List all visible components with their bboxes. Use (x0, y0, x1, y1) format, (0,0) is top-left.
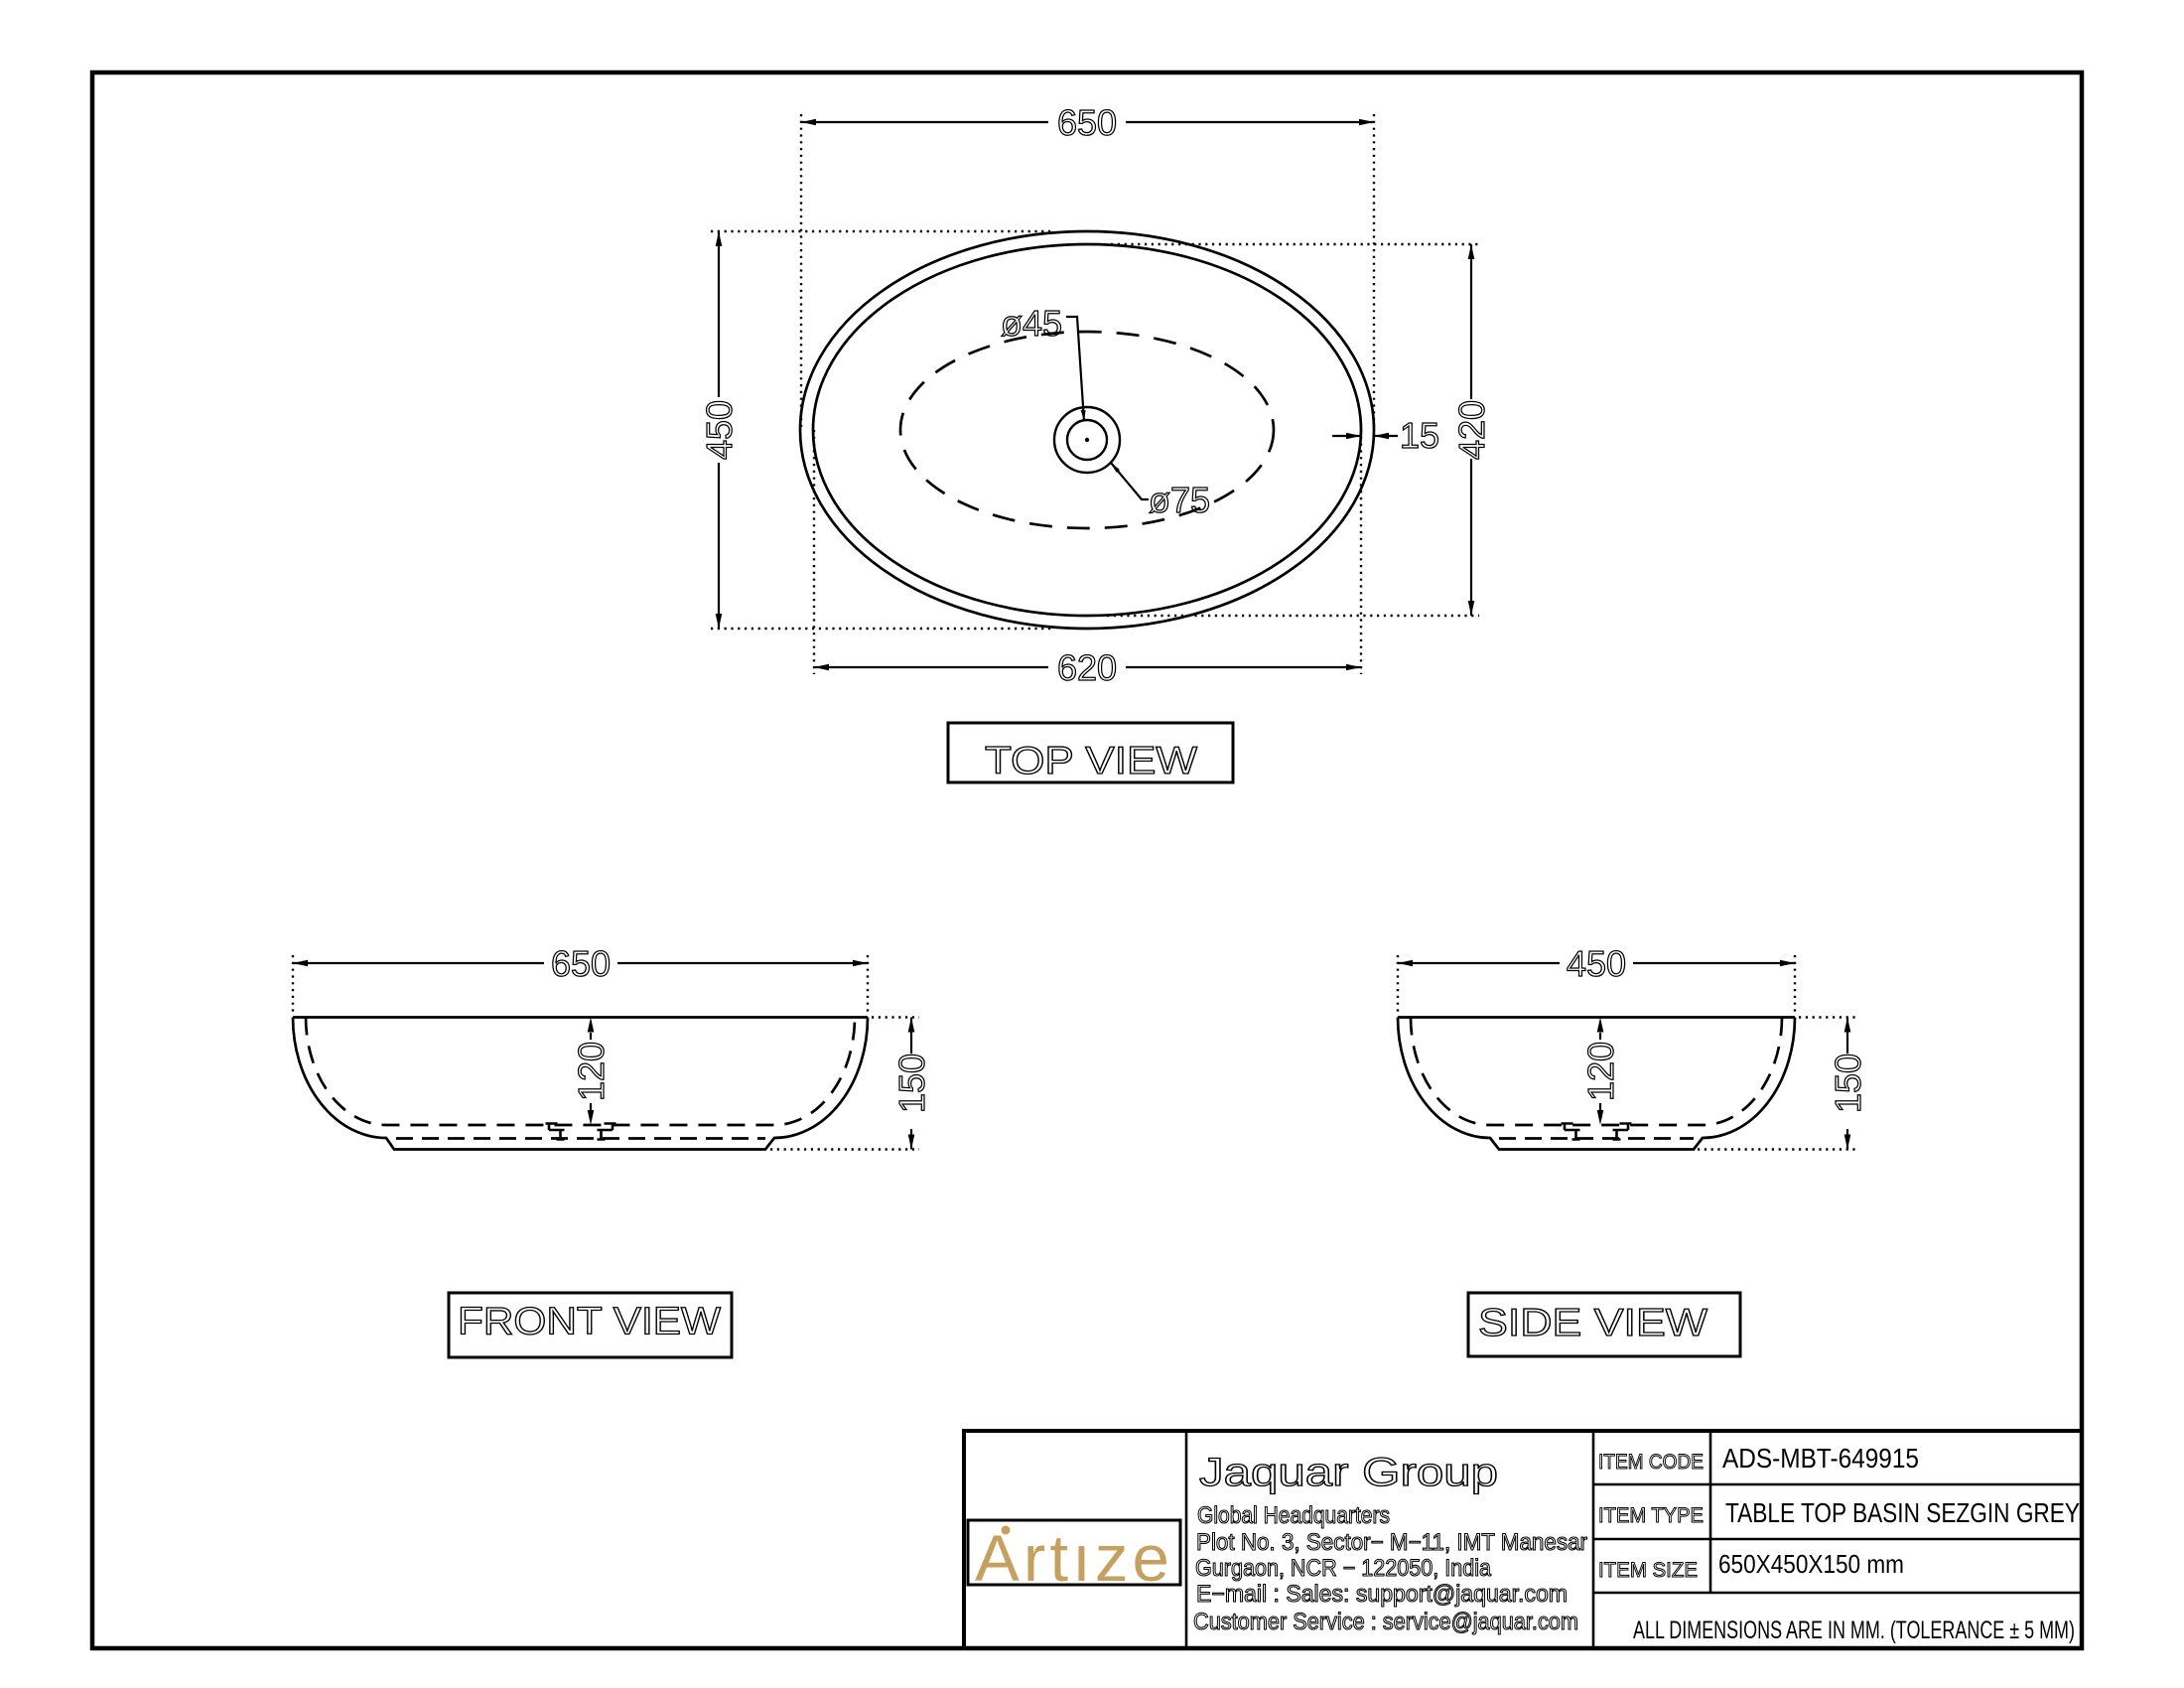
svg-text:Customer Service : service@jaq: Customer Service : service@jaquar.com (1193, 1609, 1578, 1635)
svg-text:ø75: ø75 (1149, 480, 1210, 520)
svg-text:TOP VIEW: TOP VIEW (985, 740, 1197, 782)
svg-text:15: 15 (1400, 415, 1439, 456)
svg-text:150: 150 (1828, 1054, 1868, 1113)
svg-text:620: 620 (1057, 647, 1117, 688)
svg-text:120: 120 (1580, 1042, 1621, 1101)
svg-text:Global Headquarters: Global Headquarters (1197, 1502, 1390, 1529)
svg-text:Jaquar Group: Jaquar Group (1199, 1451, 1498, 1494)
svg-text:ITEM SIZE: ITEM SIZE (1598, 1559, 1698, 1582)
svg-text:SIDE VIEW: SIDE VIEW (1478, 1302, 1707, 1344)
svg-text:ALL DIMENSIONS ARE IN MM. (TOL: ALL DIMENSIONS ARE IN MM. (TOLERANCE ± 5… (1633, 1617, 2075, 1644)
svg-text:450: 450 (699, 400, 740, 460)
svg-text:650: 650 (551, 943, 611, 984)
svg-text:650X450X150 mm: 650X450X150 mm (1718, 1549, 1904, 1579)
svg-text:Gurgaon, NCR − 122050, India: Gurgaon, NCR − 122050, India (1195, 1555, 1492, 1582)
svg-text:ø45: ø45 (1001, 303, 1062, 344)
svg-text:Plot No. 3, Sector− M−11, IMT: Plot No. 3, Sector− M−11, IMT Manesar (1196, 1529, 1587, 1556)
svg-text:120: 120 (571, 1042, 612, 1101)
svg-text:420: 420 (1451, 400, 1492, 460)
svg-text:ADS-MBT-649915: ADS-MBT-649915 (1722, 1443, 1919, 1474)
svg-text:150: 150 (891, 1054, 932, 1113)
svg-text:650: 650 (1057, 102, 1117, 143)
svg-text:ITEM CODE: ITEM CODE (1598, 1451, 1704, 1474)
svg-text:E−mail : Sales: support@jaquar: E−mail : Sales: support@jaquar.com (1196, 1581, 1568, 1608)
svg-text:ITEM TYPE: ITEM TYPE (1598, 1504, 1704, 1527)
svg-text:FRONT VIEW: FRONT VIEW (458, 1301, 721, 1343)
svg-text:450: 450 (1567, 943, 1626, 984)
svg-text:TABLE TOP BASIN SEZGIN GREY: TABLE TOP BASIN SEZGIN GREY (1725, 1497, 2080, 1528)
